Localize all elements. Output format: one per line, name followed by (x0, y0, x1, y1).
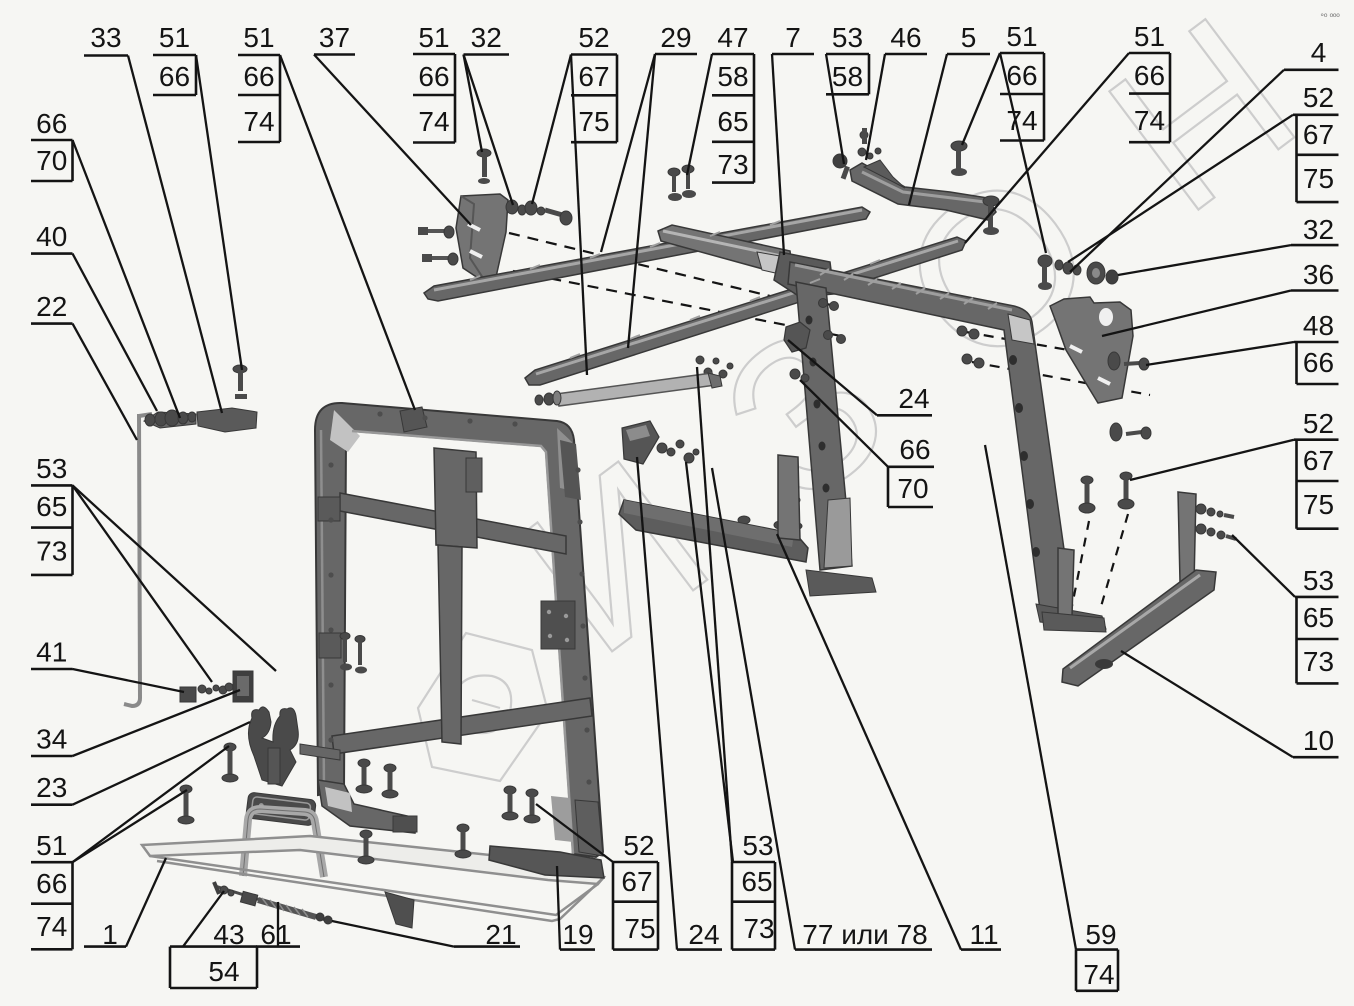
svg-text:51: 51 (1134, 21, 1165, 52)
svg-text:74: 74 (418, 106, 449, 137)
svg-text:24: 24 (688, 919, 719, 950)
svg-text:52: 52 (623, 830, 654, 861)
svg-text:74: 74 (1006, 105, 1037, 136)
svg-text:74: 74 (1083, 959, 1114, 990)
svg-text:73: 73 (743, 913, 774, 944)
svg-text:47: 47 (717, 22, 748, 53)
svg-text:66: 66 (243, 61, 274, 92)
svg-text:67: 67 (578, 61, 609, 92)
svg-text:67: 67 (1303, 445, 1334, 476)
svg-text:52: 52 (1303, 82, 1334, 113)
svg-text:51: 51 (159, 22, 190, 53)
svg-text:32: 32 (471, 22, 502, 53)
svg-text:24: 24 (898, 383, 929, 414)
svg-text:36: 36 (1303, 259, 1334, 290)
svg-text:41: 41 (36, 637, 67, 668)
svg-text:4: 4 (1311, 37, 1327, 68)
svg-text:5: 5 (961, 22, 977, 53)
svg-text:52: 52 (578, 22, 609, 53)
svg-text:75: 75 (624, 913, 655, 944)
svg-text:73: 73 (1303, 646, 1334, 677)
svg-text:75: 75 (1303, 163, 1334, 194)
svg-text:70: 70 (897, 473, 928, 504)
svg-text:66: 66 (418, 61, 449, 92)
svg-text:33: 33 (90, 22, 121, 53)
svg-text:53: 53 (36, 453, 67, 484)
svg-text:46: 46 (890, 22, 921, 53)
svg-text:70: 70 (36, 145, 67, 176)
svg-text:74: 74 (1134, 105, 1165, 136)
svg-text:53: 53 (1303, 565, 1334, 596)
svg-text:65: 65 (1303, 602, 1334, 633)
svg-text:66: 66 (159, 61, 190, 92)
svg-text:65: 65 (36, 491, 67, 522)
svg-text:51: 51 (36, 830, 67, 861)
svg-text:73: 73 (36, 536, 67, 567)
svg-text:66: 66 (899, 434, 930, 465)
svg-text:73: 73 (717, 149, 748, 180)
svg-text:29: 29 (660, 22, 691, 53)
svg-text:23: 23 (36, 772, 67, 803)
svg-text:74: 74 (36, 911, 67, 942)
svg-text:74: 74 (243, 106, 274, 137)
svg-text:°º ººº: °º ººº (1320, 12, 1340, 22)
svg-text:75: 75 (578, 106, 609, 137)
svg-text:1: 1 (102, 919, 118, 950)
svg-text:34: 34 (36, 724, 67, 755)
svg-text:67: 67 (621, 866, 652, 897)
svg-text:10: 10 (1303, 725, 1334, 756)
svg-text:43: 43 (213, 919, 244, 950)
svg-text:65: 65 (741, 866, 772, 897)
svg-text:66: 66 (1006, 60, 1037, 91)
svg-text:53: 53 (832, 22, 863, 53)
svg-text:22: 22 (36, 291, 67, 322)
svg-text:77 или 78: 77 или 78 (802, 919, 927, 950)
svg-text:51: 51 (243, 22, 274, 53)
svg-text:11: 11 (969, 919, 998, 950)
svg-text:66: 66 (36, 108, 67, 139)
svg-text:67: 67 (1303, 119, 1334, 150)
svg-text:53: 53 (742, 830, 773, 861)
svg-text:21: 21 (485, 919, 516, 950)
svg-text:59: 59 (1085, 919, 1116, 950)
svg-text:51: 51 (418, 22, 449, 53)
svg-text:37: 37 (319, 22, 350, 53)
svg-text:66: 66 (36, 868, 67, 899)
svg-text:54: 54 (208, 956, 239, 987)
svg-text:32: 32 (1303, 214, 1334, 245)
svg-text:40: 40 (36, 221, 67, 252)
svg-text:65: 65 (717, 106, 748, 137)
svg-text:66: 66 (1134, 60, 1165, 91)
svg-text:61: 61 (260, 919, 291, 950)
svg-text:19: 19 (562, 919, 593, 950)
svg-text:51: 51 (1006, 21, 1037, 52)
svg-text:75: 75 (1303, 489, 1334, 520)
svg-text:66: 66 (1303, 347, 1334, 378)
svg-text:48: 48 (1303, 310, 1334, 341)
svg-text:52: 52 (1303, 408, 1334, 439)
svg-text:7: 7 (785, 22, 801, 53)
svg-text:58: 58 (832, 61, 863, 92)
svg-text:58: 58 (717, 61, 748, 92)
